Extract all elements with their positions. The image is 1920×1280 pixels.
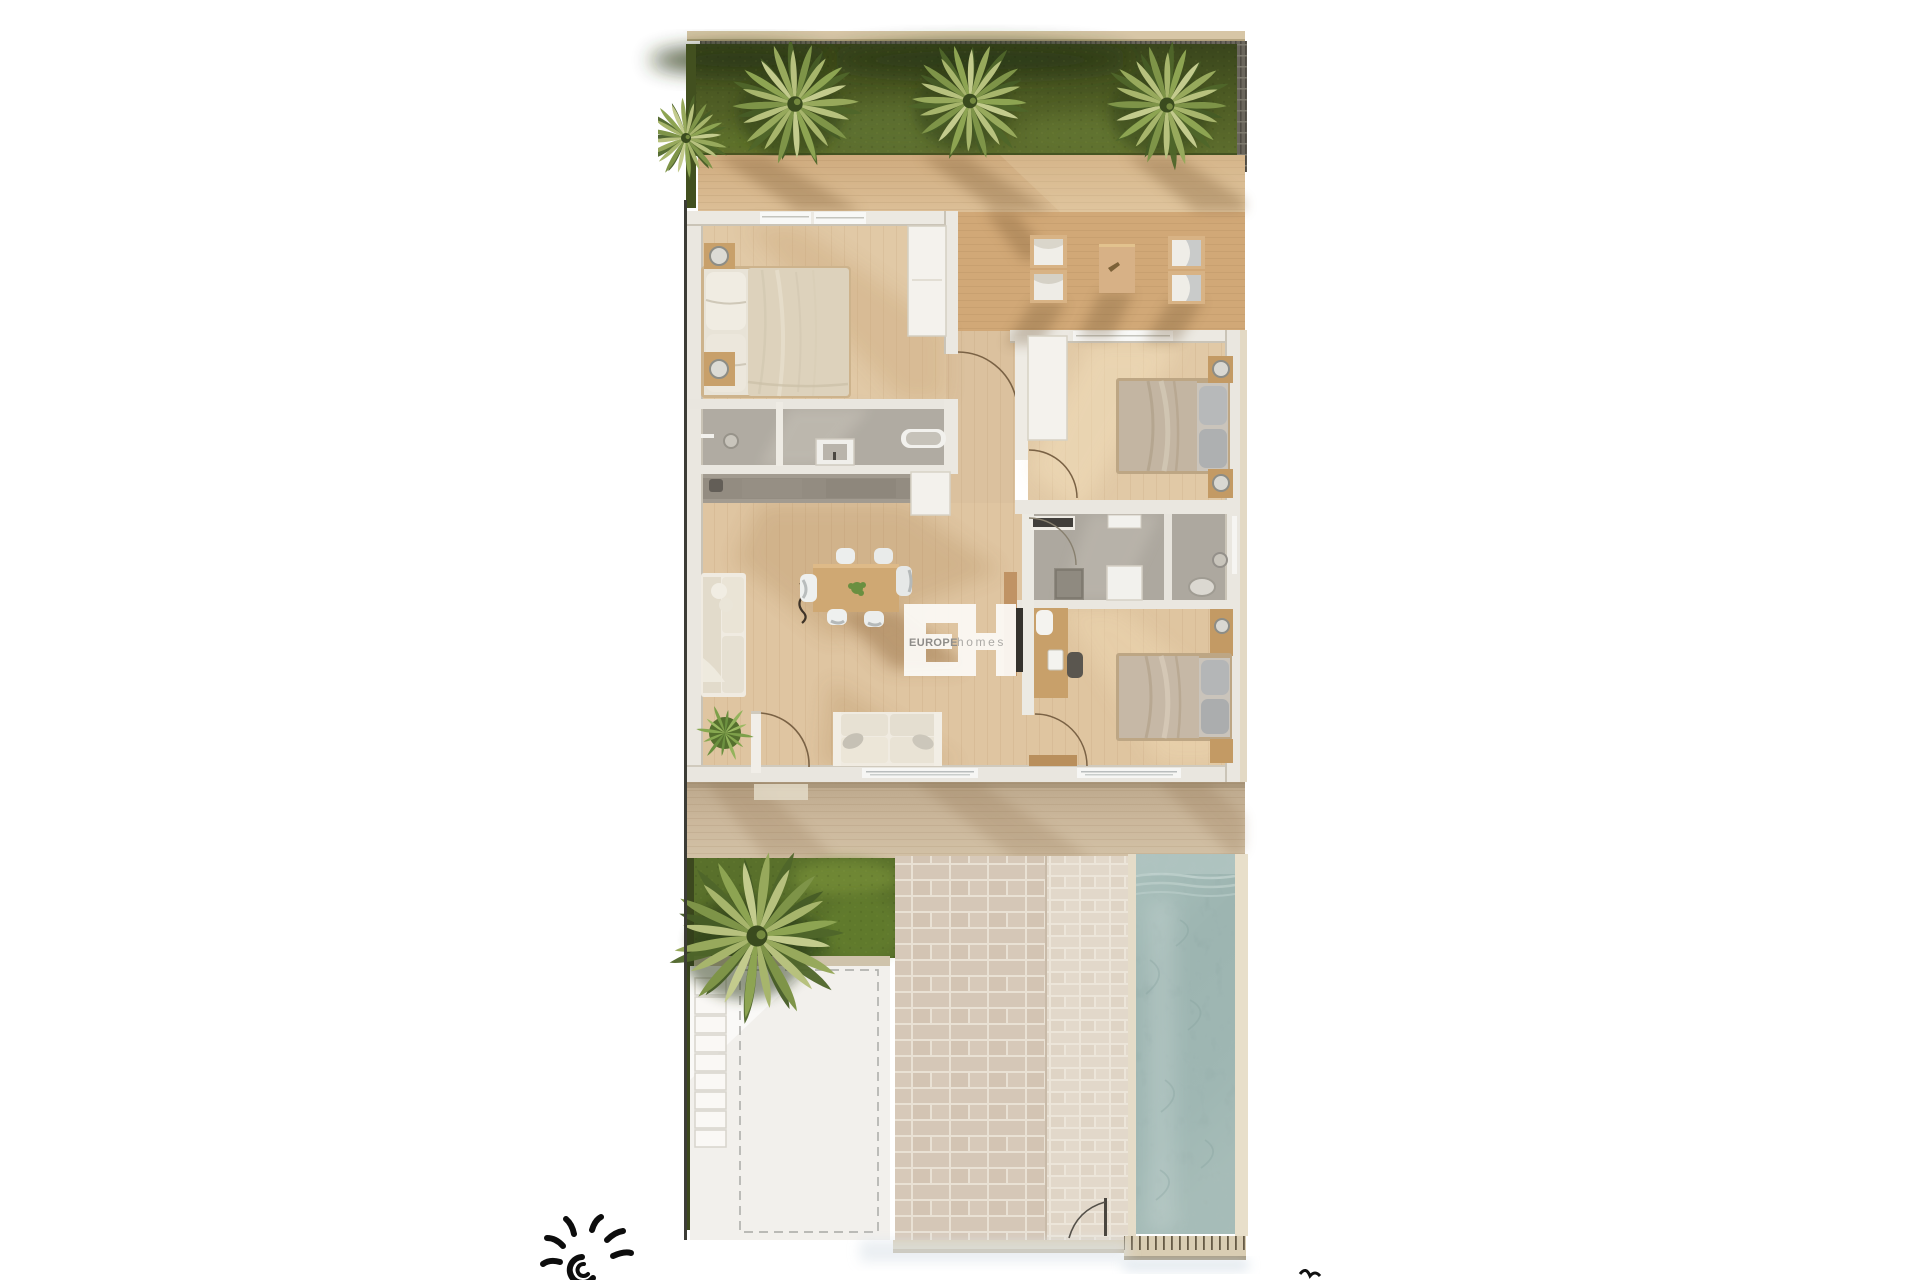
svg-text:homes: homes [957, 635, 1006, 649]
svg-text:EUROPE: EUROPE [909, 637, 958, 649]
